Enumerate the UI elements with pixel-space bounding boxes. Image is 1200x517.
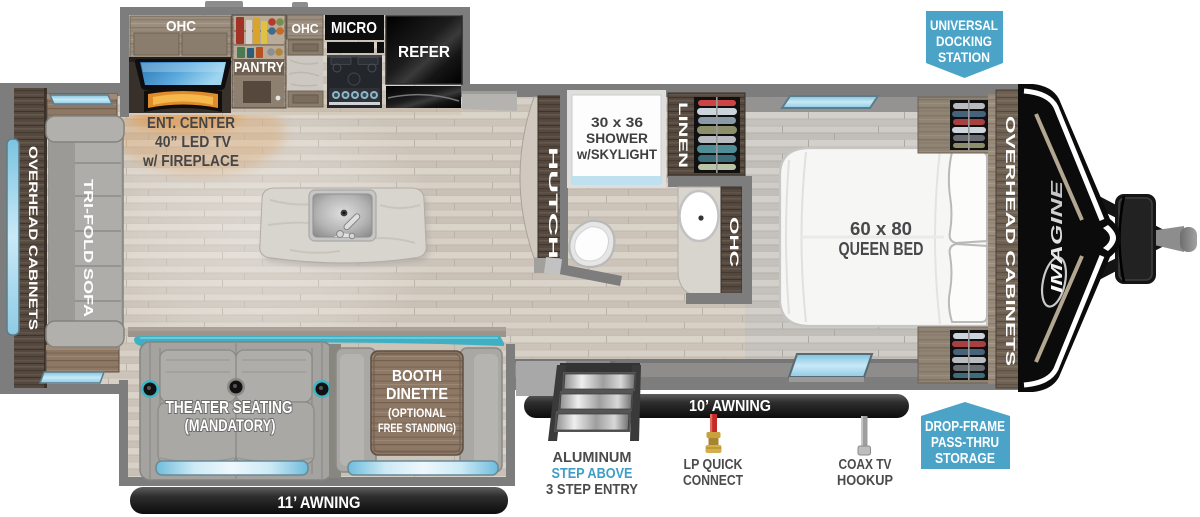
svg-text:IMAGINE: IMAGINE — [1049, 180, 1066, 293]
svg-text:OVERHEAD CABINETS: OVERHEAD CABINETS — [1003, 116, 1017, 366]
svg-text:LP QUICK: LP QUICK — [684, 457, 743, 473]
svg-text:PANTRY: PANTRY — [234, 60, 284, 76]
svg-text:COAX TV: COAX TV — [839, 457, 892, 473]
svg-text:OVERHEAD CABINETS: OVERHEAD CABINETS — [26, 146, 40, 330]
svg-text:OHC: OHC — [727, 217, 741, 268]
svg-text:(MANDATORY): (MANDATORY) — [185, 416, 276, 435]
svg-text:FREE STANDING): FREE STANDING) — [378, 423, 456, 435]
svg-text:DROP-FRAME: DROP-FRAME — [925, 419, 1005, 435]
svg-text:SHOWER: SHOWER — [586, 131, 648, 146]
svg-text:OHC: OHC — [292, 21, 320, 36]
svg-text:THEATER SEATING: THEATER SEATING — [166, 397, 293, 417]
svg-text:TRI-FOLD SOFA: TRI-FOLD SOFA — [81, 179, 96, 318]
svg-text:MICRO: MICRO — [331, 20, 377, 37]
svg-text:11’ AWNING: 11’ AWNING — [278, 494, 361, 512]
svg-text:BOOTH: BOOTH — [392, 368, 442, 385]
svg-text:10’ AWNING: 10’ AWNING — [689, 398, 771, 415]
svg-text:QUEEN BED: QUEEN BED — [839, 238, 924, 259]
svg-text:PASS-THRU: PASS-THRU — [931, 435, 999, 451]
svg-text:STEP ABOVE: STEP ABOVE — [552, 466, 633, 482]
svg-text:DINETTE: DINETTE — [386, 386, 448, 403]
svg-text:w/SKYLIGHT: w/SKYLIGHT — [576, 147, 658, 162]
svg-text:60 x 80: 60 x 80 — [850, 218, 912, 239]
svg-text:ALUMINUM: ALUMINUM — [553, 450, 632, 466]
svg-text:HOOKUP: HOOKUP — [837, 473, 893, 489]
svg-text:ENT. CENTER: ENT. CENTER — [147, 115, 235, 132]
svg-text:REFER: REFER — [398, 44, 450, 61]
svg-text:w/ FIREPLACE: w/ FIREPLACE — [142, 153, 239, 170]
svg-text:30 x 36: 30 x 36 — [591, 115, 644, 130]
svg-text:CONNECT: CONNECT — [683, 473, 743, 489]
svg-text:40” LED TV: 40” LED TV — [155, 134, 232, 151]
svg-text:(OPTIONAL: (OPTIONAL — [388, 408, 446, 420]
svg-text:UNIVERSAL: UNIVERSAL — [930, 17, 998, 33]
svg-text:STORAGE: STORAGE — [935, 451, 995, 467]
svg-text:3 STEP ENTRY: 3 STEP ENTRY — [546, 482, 638, 498]
svg-text:LINEN: LINEN — [676, 102, 690, 168]
svg-text:DOCKING: DOCKING — [936, 33, 992, 49]
svg-text:STATION: STATION — [938, 49, 990, 65]
svg-text:OHC: OHC — [166, 19, 196, 35]
svg-text:HUTCH: HUTCH — [546, 147, 560, 259]
